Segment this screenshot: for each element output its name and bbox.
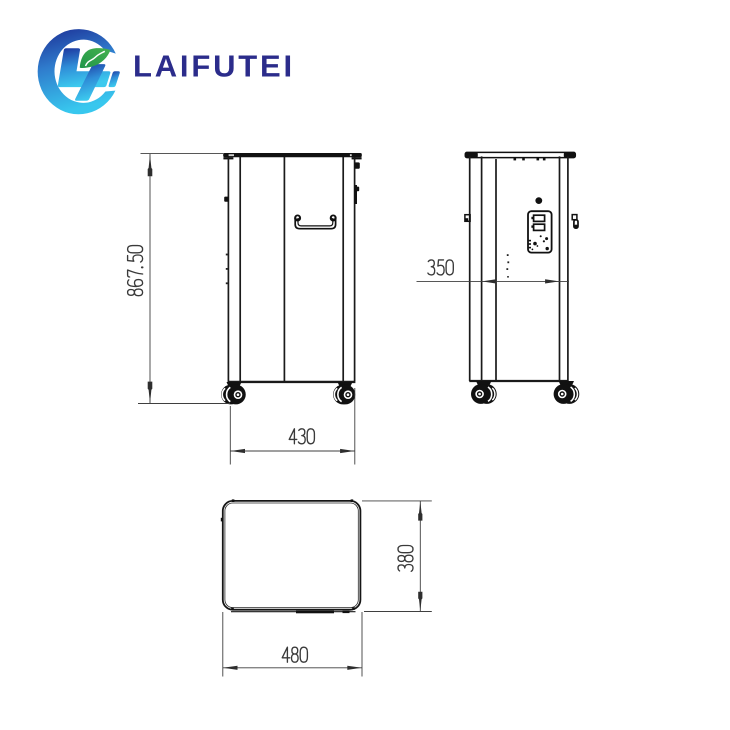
svg-text:LAIFUTEI: LAIFUTEI [133, 49, 295, 84]
